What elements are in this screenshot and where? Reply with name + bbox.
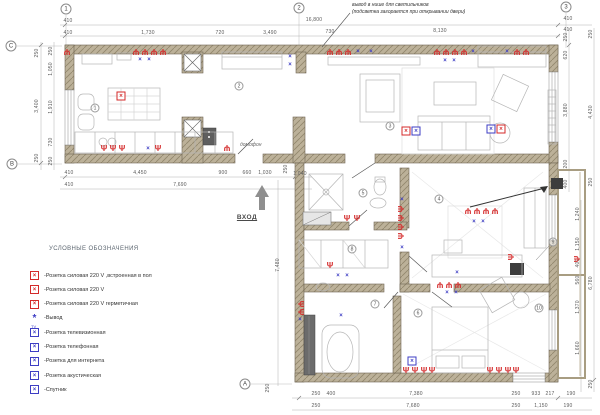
legend-item-label: -Розетка для интернета [44,358,104,364]
power-socket-symbol: Ψ [110,145,116,153]
room-number-5: 5 [359,189,368,198]
output-icon: * [30,314,39,323]
power-socket-symbol: Ψ [345,47,351,55]
dimension-label: 250 [48,157,54,166]
grid-bubble-3: 3 [561,2,572,13]
dimension-label: 410 [65,170,74,176]
signal-socket-symbol: × [356,49,360,55]
tv-socket-icon: ×TV [30,328,39,337]
niche-lighting-annotation: вывод в нише для светильников (подсветка… [352,2,465,16]
room-number-6: 6 [414,309,423,318]
signal-socket-symbol: × [147,57,151,63]
power-socket-symbol: Ψ [474,206,480,214]
power-socket-symbol: Ψ [119,145,125,153]
power-socket-symbol: Ψ [344,215,350,223]
signal-socket-symbol: × [336,273,340,279]
room-number-7: 7 [371,300,380,309]
intercom-label: домофон [240,142,262,148]
sealed-power-socket-icon: × [30,300,39,309]
dimension-label: 900 [219,170,228,176]
dimension-label: 250 [265,384,271,393]
power-socket-symbol: Ψ [492,206,498,214]
annotation-line1: вывод в нише для светильников [352,2,465,9]
dimension-label: 1,910 [48,100,54,114]
power-socket-symbol: Ψ [483,206,489,214]
signal-socket-symbol: × [298,317,302,323]
dimension-label: 7,380 [409,391,423,397]
dimension-label: 400 [563,180,569,189]
floor-signal-socket-symbol: × [487,125,496,134]
power-socket-symbol: Ψ [508,254,516,260]
grid-bubble-2: 2 [294,3,305,14]
power-socket-symbol: Ψ [354,215,360,223]
signal-socket-symbol: × [369,49,373,55]
power-socket-symbol: Ψ [398,224,406,230]
legend-icon-tag: TV [31,324,36,329]
dimension-label: 250 [512,391,521,397]
floor-power-socket-symbol: × [497,125,506,134]
dimension-label: 3,880 [563,103,569,117]
power-socket-symbol: Ψ [523,47,529,55]
floor-power-socket-icon: × [30,271,39,280]
floor-plan-drawing: 41016,8004104101,7307203,4907308,1304104… [0,0,600,415]
power-socket-symbol: Ψ [434,47,440,55]
dimension-label: 410 [564,16,573,22]
legend-item: ×-Розетка акустическая [30,371,101,380]
power-socket-symbol: Ψ [142,47,148,55]
signal-socket-symbol: × [505,49,509,55]
power-socket-symbol: Ψ [412,367,418,375]
power-socket-symbol: Ψ [155,145,161,153]
power-socket-symbol: Ψ [421,367,427,375]
legend-item: ×-Розетка для интернета [30,357,104,366]
signal-socket-symbol: × [452,58,456,64]
dimension-label: 250 [48,47,54,56]
room-number-3: 3 [386,122,395,131]
dimension-label: 16,800 [306,17,323,23]
dimension-label: 7,690 [173,182,187,188]
power-socket-symbol: Ψ [336,47,342,55]
signal-socket-symbol: × [288,62,292,68]
dimension-label: 3,490 [263,30,277,36]
dimension-label: 250 [34,154,40,163]
legend-item: ×TV-Розетка телевизионная [30,328,106,337]
floor-power-socket-symbol: × [402,127,411,136]
dimension-label: 250 [34,49,40,58]
room-number-1: 1 [91,104,100,113]
power-socket-symbol: Ψ [224,143,230,151]
dimension-label: 410 [64,18,73,24]
dimension-label: 933 [532,391,541,397]
legend-item: ×-Розетка телефонная [30,343,99,352]
power-socket-icon: × [30,285,39,294]
power-socket-symbol: Ψ [461,47,467,55]
legend-item: ×-Розетка силовая 220 V ,встроенная в по… [30,271,152,280]
labels-overlay: 41016,8004104101,7307203,4907308,1304104… [0,0,600,415]
power-socket-symbol: Ψ [437,280,443,288]
dimension-label: 8,130 [433,28,447,34]
dimension-label: 250 [312,391,321,397]
dimension-label: 7,680 [406,403,420,409]
dimension-label: 250 [312,403,321,409]
signal-socket-symbol: × [445,290,449,296]
dimension-label: 4,430 [588,105,594,119]
signal-socket-symbol: × [455,270,459,276]
power-socket-symbol: Ψ [398,233,406,239]
dimension-label: 410 [64,30,73,36]
dimension-label: 1,150 [575,237,581,251]
power-socket-symbol: Ψ [455,280,461,288]
signal-socket-symbol: × [288,54,292,60]
power-socket-symbol: Ψ [327,47,333,55]
power-socket-symbol: Ψ [296,301,304,307]
internet-socket-icon: × [30,357,39,366]
grid-bubble-C: C [6,41,17,52]
dimension-label: 6,780 [588,276,594,290]
grid-bubble-A: A [240,379,251,390]
annotation-line2: (подсветка загорается при открывании две… [352,9,465,16]
signal-socket-symbol: × [146,146,150,152]
dimension-label: 250 [512,403,521,409]
legend-title: УСЛОВНЫЕ ОБОЗНАЧЕНИЯ [49,246,139,252]
dimension-label: 1,370 [575,300,581,314]
power-socket-symbol: Ψ [513,367,519,375]
legend-item: ×-Спутник [30,385,67,394]
signal-socket-symbol: × [443,58,447,64]
dimension-label: 620 [563,51,569,60]
signal-socket-symbol: × [138,57,142,63]
power-socket-symbol: Ψ [327,262,333,270]
dimension-label: 4,450 [133,170,147,176]
legend-item-label: -Розетка силовая 220 V [44,287,104,293]
power-socket-symbol: Ψ [465,206,471,214]
power-socket-symbol: Ψ [505,367,511,375]
legend-item-label: -Розетка телевизионная [44,330,106,336]
floor-signal-socket-symbol: × [408,357,417,366]
power-socket-symbol: Ψ [403,367,409,375]
floor-power-socket-symbol: × [117,92,126,101]
power-socket-symbol: Ψ [398,206,406,212]
acoustic-socket-icon: × [30,371,39,380]
dimension-label: 1,730 [141,30,155,36]
room-number-9: 9 [549,238,558,247]
dimension-label: 1,030 [258,170,272,176]
dimension-label: 400 [327,391,336,397]
signal-socket-symbol: × [472,219,476,225]
legend-item-label: -Розетка силовая 220 V герметичная [44,301,138,307]
satellite-icon: × [30,385,39,394]
dimension-label: 250 [283,165,289,174]
dimension-label: 730 [326,29,335,35]
dimension-label: 1,050 [48,62,54,76]
power-socket-symbol: Ψ [151,47,157,55]
floor-signal-socket-symbol: × [412,127,421,136]
dimension-label: 1,240 [575,207,581,221]
power-socket-symbol: Ψ [514,47,520,55]
dimension-label: 200 [563,160,569,169]
legend-item: *-Вывод [30,314,62,323]
room-number-4: 4 [435,195,444,204]
room-number-2: 2 [235,82,244,91]
room-number-10: 10 [535,304,544,313]
legend-item-label: -Вывод [44,315,62,321]
legend-item: ×-Розетка силовая 220 V герметичная [30,300,138,309]
entrance-label: ВХОД [237,214,257,221]
power-socket-symbol: Ψ [133,47,139,55]
signal-socket-symbol: × [400,197,404,203]
signal-socket-symbol: × [481,219,485,225]
power-socket-symbol: Ψ [574,256,582,262]
legend-item: ×-Розетка силовая 220 V [30,285,104,294]
dimension-label: 660 [243,170,252,176]
power-socket-symbol: Ψ [398,215,406,221]
legend-item-label: -Розетка акустическая [44,373,101,379]
legend-item-label: -Спутник [44,387,67,393]
dimension-label: 7,480 [275,258,281,272]
signal-socket-symbol: × [400,245,404,251]
dimension-label: 250 [588,380,594,389]
power-socket-symbol: Ψ [160,47,166,55]
power-socket-symbol: Ψ [487,367,493,375]
legend-item-label: -Розетка телефонная [44,344,99,350]
signal-socket-symbol: × [471,49,475,55]
dimension-label: 1,150 [534,403,548,409]
signal-socket-symbol: × [339,313,343,319]
dimension-label: 190 [564,403,573,409]
dimension-label: 190 [567,391,576,397]
power-socket-symbol: Ψ [452,47,458,55]
signal-socket-symbol: × [345,273,349,279]
legend-item-label: -Розетка силовая 220 V ,встроенная в пол [44,273,152,279]
grid-bubble-B: B [7,159,18,170]
dimension-label: 730 [48,138,54,147]
dimension-label: 250 [588,30,594,39]
phone-socket-icon: × [30,343,39,352]
room-number-8: 8 [348,245,357,254]
dimension-label: 3,400 [34,99,40,113]
signal-socket-symbol: × [454,290,458,296]
power-socket-symbol: Ψ [101,145,107,153]
dimension-label: 250 [563,33,569,42]
power-socket-symbol: Ψ [429,367,435,375]
dimension-label: 560 [575,276,581,285]
dimension-label: 720 [216,30,225,36]
grid-bubble-1: 1 [61,4,72,15]
power-socket-symbol: Ψ [443,47,449,55]
power-socket-symbol: Ψ [64,47,70,55]
dimension-label: 1,040 [293,171,307,177]
dimension-label: 217 [546,391,555,397]
power-socket-symbol: Ψ [296,309,304,315]
dimension-label: 410 [65,182,74,188]
power-socket-symbol: Ψ [496,367,502,375]
dimension-label: 1,660 [575,341,581,355]
power-socket-symbol: Ψ [446,280,452,288]
dimension-label: 250 [588,178,594,187]
